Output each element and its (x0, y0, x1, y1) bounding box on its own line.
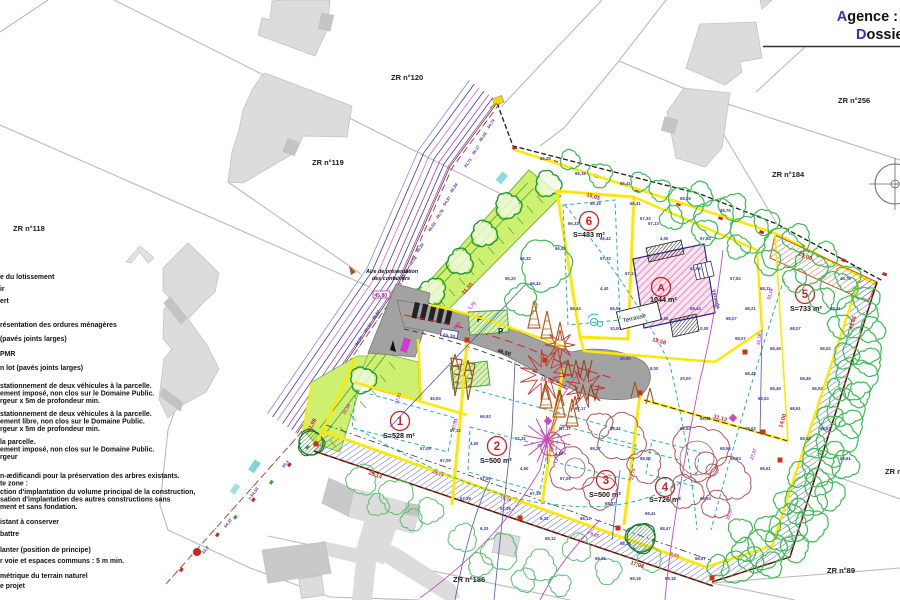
svg-text:67,32: 67,32 (515, 436, 526, 441)
svg-text:68,21: 68,21 (745, 306, 756, 311)
svg-text:6,33: 6,33 (540, 516, 549, 521)
svg-text:PMR: PMR (0, 351, 15, 358)
svg-text:4,40: 4,40 (600, 286, 609, 291)
svg-text:ement libre, non clos sur le D: ement libre, non clos sur le Domaine Pub… (0, 419, 145, 426)
svg-text:rgeur: rgeur (0, 454, 18, 461)
svg-text:Dossier: Dossier (856, 27, 900, 43)
svg-text:68,63: 68,63 (730, 456, 741, 461)
svg-text:stationnement de deux véhicule: stationnement de deux véhicules à la par… (0, 411, 152, 418)
svg-text:ZR n°118: ZR n°118 (13, 224, 45, 233)
svg-text:67,96: 67,96 (690, 266, 701, 271)
svg-text:ction d'implantation du volume: ction d'implantation du volume principal… (0, 489, 195, 496)
svg-text:48,76: 48,76 (840, 276, 851, 281)
svg-text:66,19: 66,19 (575, 171, 586, 176)
svg-text:66,32: 66,32 (520, 256, 531, 261)
svg-text:67,39: 67,39 (460, 496, 471, 501)
svg-text:45,80: 45,80 (375, 293, 388, 299)
svg-text:67,17: 67,17 (575, 406, 586, 411)
svg-text:67,39: 67,39 (530, 491, 541, 496)
svg-text:68,61: 68,61 (790, 406, 801, 411)
svg-text:Agence :: Agence : (837, 9, 898, 25)
svg-text:68,47: 68,47 (660, 526, 671, 531)
svg-text:68,12: 68,12 (580, 516, 591, 521)
svg-text:5: 5 (802, 289, 809, 301)
svg-text:ZR n°89: ZR n°89 (827, 566, 855, 575)
svg-text:ZR n°256: ZR n°256 (838, 96, 870, 105)
svg-text:lanter (position de principe): lanter (position de principe) (0, 547, 91, 554)
svg-text:P: P (498, 327, 504, 336)
svg-text:65,20: 65,20 (505, 276, 516, 281)
svg-text:A: A (657, 282, 665, 294)
svg-text:battre: battre (0, 531, 19, 538)
svg-text:68,49: 68,49 (770, 386, 781, 391)
svg-text:67,09: 67,09 (440, 458, 451, 463)
svg-text:ment et sans fondation.: ment et sans fondation. (0, 504, 77, 511)
svg-text:10,00: 10,00 (610, 326, 621, 331)
svg-text:67,17: 67,17 (625, 271, 636, 276)
svg-text:67,84: 67,84 (700, 236, 711, 241)
svg-text:n lot (pavés joints larges): n lot (pavés joints larges) (0, 365, 83, 372)
svg-text:68,87: 68,87 (695, 556, 706, 561)
svg-text:46,93: 46,93 (430, 396, 441, 401)
svg-text:67,09: 67,09 (560, 476, 571, 481)
svg-text:n-ædificandi pour la préservat: n-ædificandi pour la préservation des ar… (0, 473, 180, 480)
svg-text:66,44: 66,44 (570, 306, 581, 311)
svg-text:résentation des ordures ménagè: résentation des ordures ménagères (0, 322, 117, 329)
svg-text:S=726 m²: S=726 m² (649, 495, 681, 504)
svg-text:8,00: 8,00 (650, 366, 659, 371)
svg-text:67,13: 67,13 (648, 221, 659, 226)
svg-text:68,07: 68,07 (726, 316, 737, 321)
svg-text:r voie et espaces communs : 5: r voie et espaces communs : 5 m min. (0, 558, 124, 565)
svg-text:ZR n°119: ZR n°119 (312, 158, 344, 167)
svg-text:67,84: 67,84 (730, 276, 741, 281)
svg-text:66,42: 66,42 (530, 281, 541, 286)
svg-text:4,50: 4,50 (555, 451, 564, 456)
svg-text:0,00: 0,00 (700, 326, 709, 331)
svg-text:66,43: 66,43 (555, 246, 566, 251)
svg-text:20,00: 20,00 (680, 376, 691, 381)
svg-text:67,33: 67,33 (600, 256, 611, 261)
svg-text:68,07: 68,07 (735, 336, 746, 341)
svg-text:ert: ert (0, 298, 10, 305)
svg-text:48,76: 48,76 (720, 208, 731, 213)
svg-text:1: 1 (397, 416, 404, 428)
svg-text:68,54: 68,54 (680, 426, 691, 431)
svg-text:ir: ir (0, 286, 5, 293)
svg-text:67,38: 67,38 (500, 506, 511, 511)
svg-text:des containers: des containers (372, 276, 410, 282)
svg-text:68,44: 68,44 (690, 306, 701, 311)
svg-text:4,50: 4,50 (470, 441, 479, 446)
svg-text:31,18: 31,18 (756, 333, 762, 345)
svg-text:67,50: 67,50 (480, 476, 491, 481)
svg-text:20,00: 20,00 (620, 356, 631, 361)
svg-text:ement imposé, non clos sur le: ement imposé, non clos sur le Domaine Pu… (0, 447, 154, 454)
svg-text:68,12: 68,12 (545, 536, 556, 541)
svg-text:sation d'implantation des autr: sation d'implantation des autres constru… (0, 497, 171, 504)
svg-text:66,19: 66,19 (590, 201, 601, 206)
svg-text:stationnement de deux véhicule: stationnement de deux véhicules à la par… (0, 383, 152, 390)
svg-text:67,09: 67,09 (420, 446, 431, 451)
svg-text:2: 2 (494, 441, 500, 453)
svg-text:68,27: 68,27 (605, 501, 616, 506)
svg-text:68,48: 68,48 (800, 376, 811, 381)
svg-text:4,00: 4,00 (660, 236, 669, 241)
svg-text:6: 6 (586, 216, 592, 228)
svg-text:istant à conserver: istant à conserver (0, 519, 59, 526)
svg-text:67,17: 67,17 (560, 426, 571, 431)
svg-text:68,53: 68,53 (700, 496, 711, 501)
svg-text:66,32: 66,32 (568, 221, 579, 226)
svg-text:68,35: 68,35 (620, 541, 631, 546)
svg-text:68,63: 68,63 (800, 436, 811, 441)
svg-text:66,93: 66,93 (480, 414, 491, 419)
svg-text:66,41: 66,41 (630, 201, 641, 206)
svg-text:0,00: 0,00 (660, 316, 669, 321)
svg-text:66,96: 66,96 (610, 306, 621, 311)
svg-text:68,63: 68,63 (745, 426, 756, 431)
svg-text:rgeur x 5m de profondeur min.: rgeur x 5m de profondeur min. (0, 426, 100, 433)
svg-text:4: 4 (662, 482, 669, 494)
svg-text:6,33: 6,33 (480, 526, 489, 531)
svg-text:68,26: 68,26 (680, 196, 691, 201)
svg-text:68,61: 68,61 (760, 466, 771, 471)
svg-text:la parcelle.: la parcelle. (0, 439, 36, 446)
svg-text:68,48: 68,48 (745, 371, 756, 376)
svg-text:S=528 m²: S=528 m² (383, 431, 415, 440)
svg-text:68,07: 68,07 (790, 326, 801, 331)
svg-text:69,18: 69,18 (665, 576, 676, 581)
svg-text:69,18: 69,18 (630, 576, 641, 581)
svg-text:4,50: 4,50 (520, 466, 529, 471)
svg-text:68,61: 68,61 (840, 456, 851, 461)
svg-text:68,54: 68,54 (720, 446, 731, 451)
svg-text:ement imposé, non clos sur le: ement imposé, non clos sur le Domaine Pu… (0, 391, 154, 398)
svg-text:(pavés joints larges): (pavés joints larges) (0, 336, 67, 343)
svg-text:ZR n°184: ZR n°184 (772, 170, 805, 179)
svg-text:e du lotissement: e du lotissement (0, 274, 55, 281)
svg-text:te zone :: te zone : (0, 481, 28, 488)
svg-text:Aire de présentation: Aire de présentation (365, 269, 419, 275)
svg-text:68,27: 68,27 (610, 426, 621, 431)
svg-text:1044 m²: 1044 m² (650, 295, 677, 304)
svg-text:68,53: 68,53 (758, 396, 769, 401)
svg-text:S=500 m²: S=500 m² (480, 456, 512, 465)
svg-text:68,41: 68,41 (700, 416, 711, 421)
svg-text:68,27: 68,27 (590, 446, 601, 451)
svg-text:rgeur x 5m de profondeur min.: rgeur x 5m de profondeur min. (0, 398, 100, 405)
svg-text:68,35: 68,35 (595, 556, 606, 561)
svg-text:68,02: 68,02 (640, 456, 651, 461)
svg-text:68,53: 68,53 (820, 346, 831, 351)
svg-text:ZR n°: ZR n° (885, 467, 900, 476)
svg-text:68,11: 68,11 (830, 306, 841, 311)
svg-text:68,63: 68,63 (820, 426, 831, 431)
svg-text:e projet: e projet (0, 583, 26, 590)
svg-text:68,53: 68,53 (812, 386, 823, 391)
svg-text:66,42: 66,42 (600, 236, 611, 241)
svg-text:68,41: 68,41 (645, 511, 656, 516)
svg-text:métrique du terrain naturel: métrique du terrain naturel (0, 573, 88, 580)
svg-text:66,28: 66,28 (540, 156, 551, 161)
svg-text:ZR n°120: ZR n°120 (391, 73, 423, 82)
svg-text:3: 3 (603, 475, 609, 487)
svg-text:66,41: 66,41 (620, 181, 631, 186)
svg-text:68,48: 68,48 (770, 346, 781, 351)
